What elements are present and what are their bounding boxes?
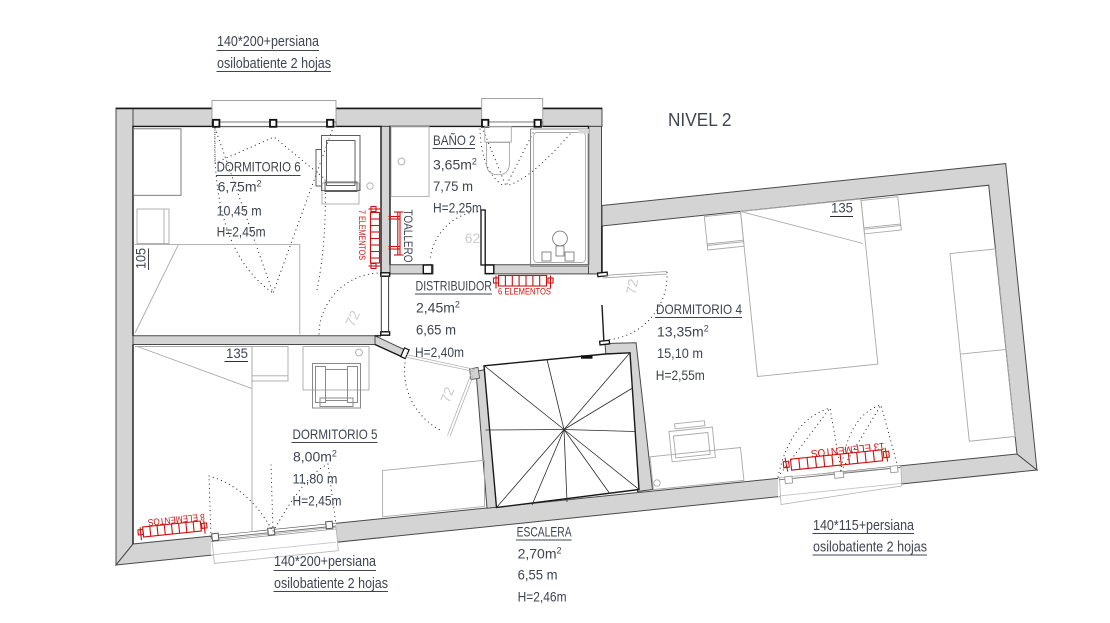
svg-text:6,65 m: 6,65 m (416, 322, 456, 338)
svg-text:10,45 m: 10,45 m (217, 203, 262, 219)
svg-text:11,80 m: 11,80 m (293, 471, 338, 487)
svg-text:140*200+persiana: 140*200+persiana (274, 553, 377, 570)
svg-text:H=2,40m: H=2,40m (415, 344, 464, 360)
svg-text:3,65m2: 3,65m2 (433, 157, 477, 173)
svg-text:DORMITORIO 5: DORMITORIO 5 (293, 426, 378, 442)
svg-text:135: 135 (831, 201, 853, 216)
svg-text:TOALLERO: TOALLERO (401, 210, 413, 263)
svg-text:H=2,46m: H=2,46m (518, 589, 567, 605)
svg-text:7 ELEMENTOS: 7 ELEMENTOS (357, 210, 367, 260)
svg-text:DORMITORIO 4: DORMITORIO 4 (656, 301, 742, 317)
svg-text:osilobatiente 2 hojas: osilobatiente 2 hojas (274, 575, 388, 592)
svg-text:2,45m2: 2,45m2 (416, 300, 460, 316)
svg-text:osilobatiente 2 hojas: osilobatiente 2 hojas (813, 539, 927, 556)
svg-text:NIVEL 2: NIVEL 2 (668, 110, 732, 130)
svg-text:15,10 m: 15,10 m (657, 345, 703, 361)
svg-text:140*115+persiana: 140*115+persiana (813, 517, 915, 534)
svg-text:6,55 m: 6,55 m (518, 567, 558, 583)
svg-text:DISTRIBUIDOR: DISTRIBUIDOR (416, 278, 493, 294)
svg-text:6 ELEMENTOS: 6 ELEMENTOS (498, 287, 551, 297)
svg-text:7,75 m: 7,75 m (433, 178, 473, 194)
svg-text:62: 62 (465, 230, 481, 246)
svg-text:H=2,25m: H=2,25m (433, 200, 482, 216)
svg-text:105: 105 (134, 248, 149, 269)
svg-text:8,00m2: 8,00m2 (293, 449, 337, 465)
svg-text:DORMITORIO 6: DORMITORIO 6 (217, 159, 301, 175)
svg-text:ESCALERA: ESCALERA (517, 524, 572, 540)
svg-text:osilobatiente 2 hojas: osilobatiente 2 hojas (217, 55, 331, 72)
svg-text:2,70m2: 2,70m2 (518, 546, 562, 562)
svg-text:6,75m2: 6,75m2 (218, 179, 262, 195)
svg-text:140*200+persiana: 140*200+persiana (217, 33, 320, 50)
svg-text:BAÑO 2: BAÑO 2 (433, 132, 476, 148)
svg-text:13,35m2: 13,35m2 (657, 324, 709, 340)
svg-text:135: 135 (226, 346, 248, 361)
svg-text:H=2,45m: H=2,45m (293, 493, 342, 509)
svg-text:H=2,55m: H=2,55m (656, 367, 705, 383)
svg-text:H=2,45m: H=2,45m (217, 224, 266, 240)
svg-text:72: 72 (623, 277, 641, 295)
